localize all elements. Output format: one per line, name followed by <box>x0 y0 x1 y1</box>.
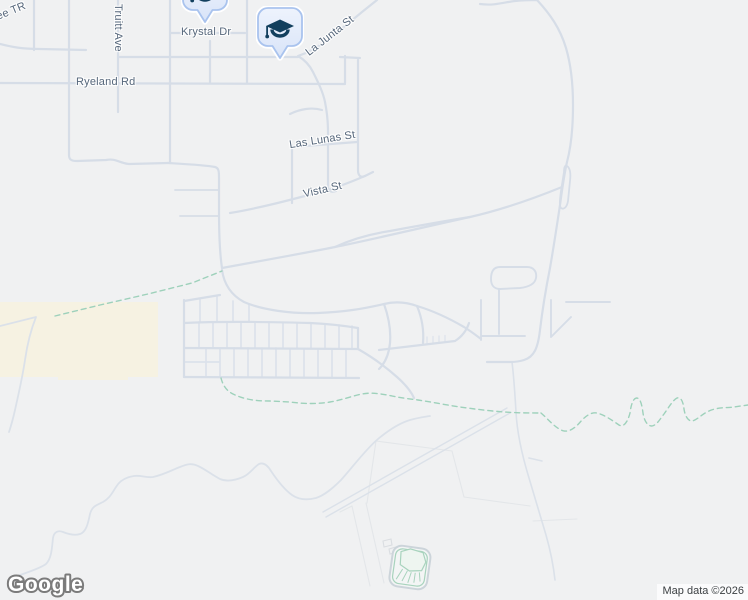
street-label-truitt-ave: Truitt Ave <box>112 4 124 60</box>
lot-lines <box>184 297 445 378</box>
road-network <box>0 0 748 600</box>
facility-structure <box>388 545 431 591</box>
map-canvas[interactable]: ree TR Truitt Ave Krystal Dr La Junta St… <box>0 0 748 600</box>
google-logo-text: Google <box>8 573 83 596</box>
school-poi-pin[interactable] <box>181 0 229 28</box>
trail-dashed-lines <box>55 271 748 431</box>
school-poi-pin[interactable] <box>256 6 304 64</box>
google-logo[interactable]: Google <box>6 570 106 598</box>
street-label-ryeland-rd: Ryeland Rd <box>76 76 135 88</box>
parcel-lines <box>340 441 577 586</box>
map-attribution: Map data ©2026 <box>657 584 748 600</box>
